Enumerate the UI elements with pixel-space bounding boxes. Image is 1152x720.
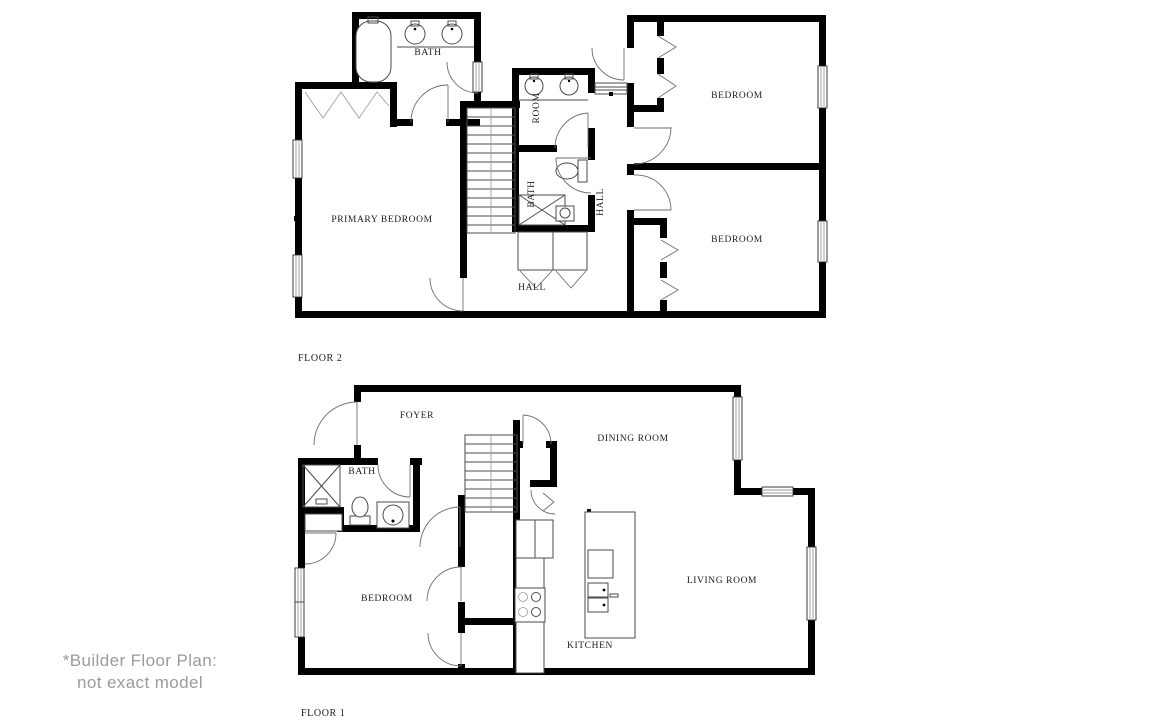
sink-icon — [556, 206, 574, 221]
hall-lower-label: HALL — [518, 283, 546, 293]
bifold-door-icon — [543, 493, 554, 511]
floor2-title: FLOOR 2 — [298, 353, 342, 364]
door-arc — [420, 507, 460, 547]
hall-closets — [518, 232, 587, 288]
door-arc — [430, 278, 463, 311]
floor2-plan: BATH PRIMARY BEDROOM ROOM BATH HALL HALL… — [293, 12, 827, 364]
sink-icon — [560, 74, 578, 95]
door-arc — [523, 415, 551, 444]
window — [293, 255, 302, 297]
floor1-plan: FOYER DINING ROOM BATH BEDROOM KITCHEN L… — [295, 385, 816, 719]
bath-label: BATH — [348, 467, 375, 477]
window — [295, 568, 304, 637]
floor-plan-drawing: BATH PRIMARY BEDROOM ROOM BATH HALL HALL… — [0, 0, 1152, 720]
door-arc — [634, 175, 671, 210]
toilet-icon — [350, 497, 370, 525]
closet-rod-icon — [305, 92, 389, 118]
door-arc — [555, 113, 588, 148]
window — [293, 140, 302, 178]
bedroom-label: BEDROOM — [361, 594, 413, 604]
door-arc — [428, 633, 461, 666]
floor2-room-fixtures — [519, 74, 588, 100]
bath-top-label: BATH — [414, 48, 441, 58]
foyer-label: FOYER — [400, 411, 434, 421]
sink-icon — [405, 21, 425, 44]
bifold-door-icon — [556, 271, 586, 288]
door-arc — [314, 402, 357, 445]
bifold-door-icon — [661, 280, 678, 300]
bifold-door-icon — [658, 74, 676, 98]
window — [818, 66, 827, 108]
refrigerator-icon — [516, 520, 553, 558]
door-arc — [411, 85, 448, 122]
door-arc — [378, 465, 410, 497]
living-room-label: LIVING ROOM — [687, 576, 757, 586]
bathtub-icon — [356, 17, 391, 82]
kitchen-island — [585, 512, 635, 638]
floor-plan-page: BATH PRIMARY BEDROOM ROOM BATH HALL HALL… — [0, 0, 1152, 720]
primary-bedroom-label: PRIMARY BEDROOM — [331, 215, 432, 225]
linen-shelves-icon — [595, 83, 627, 96]
vanity-cabinet — [305, 514, 342, 531]
stairs-icon — [467, 108, 515, 233]
sink-icon — [377, 502, 409, 528]
window — [762, 487, 793, 496]
bedroom-top-label: BEDROOM — [711, 91, 763, 101]
sink-icon — [525, 74, 543, 95]
sink-icon — [442, 21, 462, 44]
kitchen-label: KITCHEN — [567, 641, 613, 651]
bifold-door-icon — [661, 240, 678, 260]
dining-room-label: DINING ROOM — [597, 434, 668, 444]
door-arc — [531, 490, 555, 514]
window — [818, 221, 827, 262]
toilet-icon — [556, 160, 587, 182]
linen-closet-icon — [303, 465, 340, 507]
door-arc — [305, 533, 336, 564]
bedroom-bottom-label: BEDROOM — [711, 235, 763, 245]
bath-middle-label: BATH — [527, 180, 537, 207]
door-arc — [427, 567, 461, 601]
bifold-door-icon — [658, 36, 676, 58]
stove-icon — [515, 588, 545, 622]
window — [733, 397, 742, 460]
disclaimer-line2: not exact model — [28, 672, 252, 694]
room-label: ROOM — [532, 93, 542, 124]
window — [807, 547, 816, 620]
stairs-icon — [465, 435, 517, 512]
floor1-title: FLOOR 1 — [301, 708, 345, 719]
window — [473, 62, 482, 92]
door-arc — [634, 127, 671, 164]
builder-disclaimer: *Builder Floor Plan: not exact model — [28, 650, 252, 694]
hall-upper-label: HALL — [596, 188, 606, 216]
door-arc — [592, 48, 624, 80]
disclaimer-line1: *Builder Floor Plan: — [28, 650, 252, 672]
